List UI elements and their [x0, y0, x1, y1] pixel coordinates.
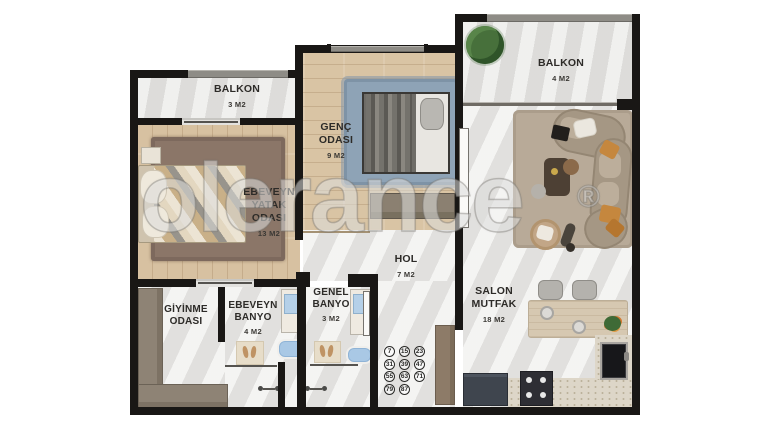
main-bath-tub [346, 346, 373, 364]
stool [531, 184, 546, 199]
shower-partition [225, 365, 277, 367]
window-jamb [424, 44, 428, 53]
room-size: 4 M2 [511, 72, 611, 85]
kids-dresser [370, 193, 455, 219]
room-name: EBEVEYN [228, 300, 277, 311]
flower-pot [604, 316, 621, 331]
wardrobe-bottom [138, 384, 228, 408]
wall [130, 279, 196, 287]
wall [130, 407, 640, 415]
kitchen-sink [600, 342, 628, 380]
room-name: HOL [395, 253, 418, 265]
door-symbol [184, 121, 238, 123]
wall [617, 99, 632, 110]
wall [130, 118, 182, 125]
sink-faucet [624, 352, 629, 361]
stove-burner [540, 392, 546, 398]
unit-number: 15 [399, 346, 410, 357]
room-name: ODASI [319, 134, 353, 146]
room-name: SALON [475, 285, 513, 297]
room-name: BANYO [234, 312, 271, 323]
balcony-railing [487, 14, 632, 22]
room-name: BANYO [312, 299, 349, 310]
floor-lamp-head [566, 243, 575, 252]
room-name: BALKON [214, 83, 260, 95]
room-label-genel-banyo: GENEL BANYO 3 M2 [296, 287, 366, 325]
door-symbol [198, 282, 252, 284]
unit-number-list: 7 15 23 31 39 47 55 63 71 79 87 [384, 346, 429, 396]
floor-plan: BALKON 3 M2 EBEVEYN YATAK ODASI 13 M2 GE… [0, 0, 770, 433]
nightstand [141, 147, 161, 164]
door-symbol [310, 388, 322, 390]
room-size: 7 M2 [376, 268, 436, 281]
unit-number: 39 [399, 359, 410, 370]
balcony-door-line [463, 102, 623, 106]
room-size: 13 M2 [224, 227, 314, 240]
unit-number: 71 [414, 371, 425, 382]
stove-burner [540, 377, 546, 383]
room-label-genc-odasi: GENÇ ODASI 9 M2 [291, 121, 381, 162]
unit-number: 79 [384, 384, 395, 395]
unit-number: 55 [384, 371, 395, 382]
bed-pillow [140, 170, 167, 204]
room-name: MUTFAK [472, 298, 517, 310]
room-name: ODASI [170, 316, 203, 327]
room-name: YATAK [252, 199, 287, 211]
coffee-table-decor [551, 168, 558, 175]
hall-cabinet [435, 325, 455, 405]
door-leaf [459, 128, 469, 228]
room-name: GİYİNME [164, 304, 208, 315]
room-name: GENEL [313, 287, 348, 298]
stove-burner [526, 392, 532, 398]
stove-burner [526, 377, 532, 383]
room-label-salon-mutfak: SALON MUTFAK 18 M2 [449, 285, 539, 326]
room-name: EBEVEYN [243, 186, 295, 198]
plant [466, 26, 504, 64]
room-name: BALKON [538, 57, 584, 69]
door-symbol [263, 388, 275, 390]
kids-bed-pillow [420, 98, 444, 130]
side-table [563, 159, 579, 175]
room-label-master-bedroom: EBEVEYN YATAK ODASI 13 M2 [224, 186, 314, 240]
unit-number: 31 [384, 359, 395, 370]
room-label-hol: HOL 7 M2 [376, 253, 436, 281]
room-size: 9 M2 [291, 149, 381, 162]
dining-chair [572, 280, 597, 300]
room-label-balkon-left: BALKON 3 M2 [187, 83, 287, 111]
wall [130, 70, 188, 78]
sofa-cushion [597, 182, 619, 206]
unit-number: 87 [399, 384, 410, 395]
unit-number: 23 [414, 346, 425, 357]
wardrobe-left [138, 288, 163, 388]
window-jamb [327, 44, 331, 53]
dining-chair [538, 280, 563, 300]
room-label-balkon-right: BALKON 4 M2 [511, 57, 611, 85]
room-size: 3 M2 [187, 98, 287, 111]
plate [540, 306, 554, 320]
room-label-ebeveyn-banyo: EBEVEYN BANYO 4 M2 [213, 300, 293, 338]
room-name: GENÇ [320, 121, 351, 133]
door-handle [322, 386, 327, 391]
room-size: 4 M2 [213, 326, 293, 338]
room-name: ODASI [252, 212, 286, 224]
fridge [463, 373, 508, 406]
shower-wall [278, 362, 285, 408]
unit-number: 47 [414, 359, 425, 370]
unit-number: 7 [384, 346, 395, 357]
room-size: 18 M2 [449, 313, 539, 326]
window [330, 46, 425, 52]
balcony-railing [188, 70, 288, 78]
plate [572, 320, 586, 334]
shower-partition [310, 364, 358, 366]
bed-pillow [142, 206, 169, 238]
wall [632, 14, 640, 415]
unit-number: 63 [399, 371, 410, 382]
room-size: 3 M2 [296, 313, 366, 325]
wall [370, 279, 378, 408]
stove [520, 371, 553, 406]
